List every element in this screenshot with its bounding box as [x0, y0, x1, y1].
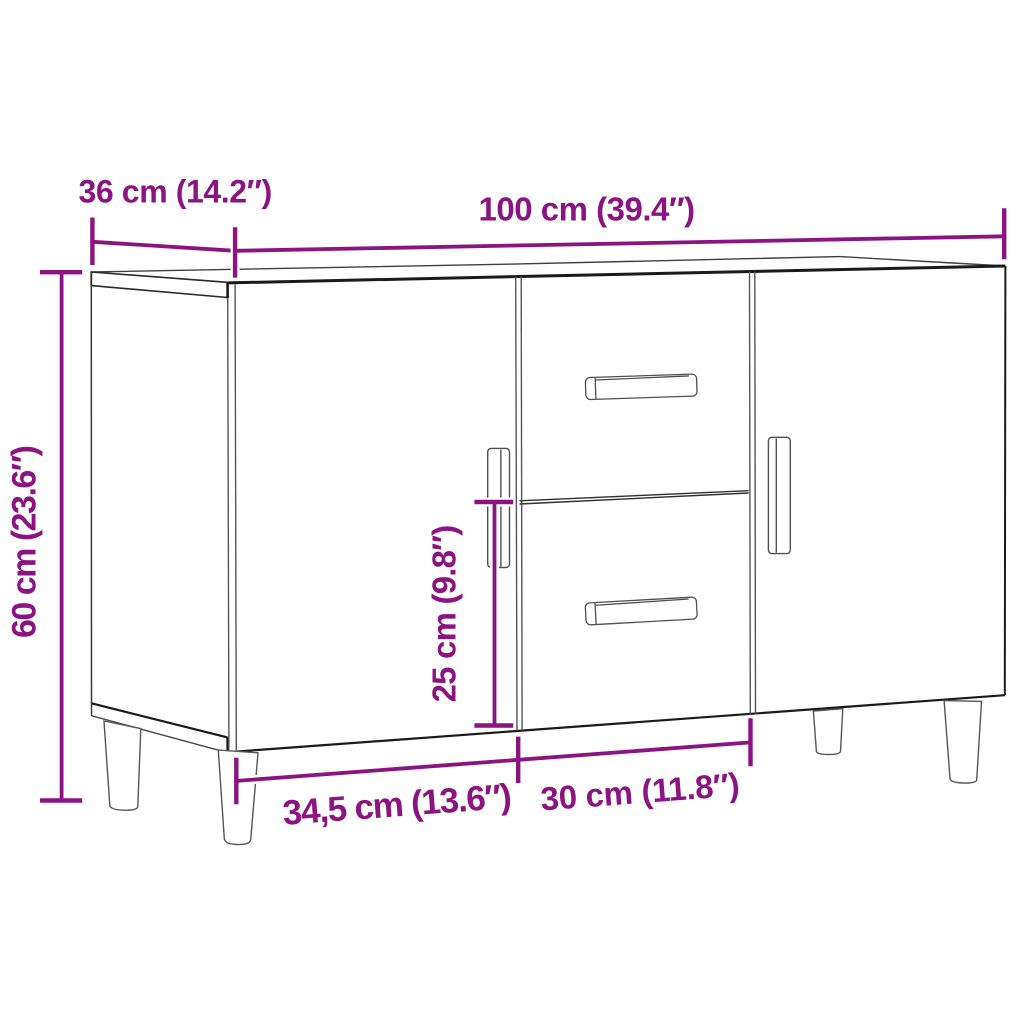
- svg-text:25 cm (9.8″): 25 cm (9.8″): [426, 526, 463, 703]
- svg-text:36 cm (14.2″): 36 cm (14.2″): [79, 173, 272, 209]
- svg-text:100 cm (39.4″): 100 cm (39.4″): [479, 190, 695, 227]
- svg-text:60 cm (23.6″): 60 cm (23.6″): [6, 446, 44, 638]
